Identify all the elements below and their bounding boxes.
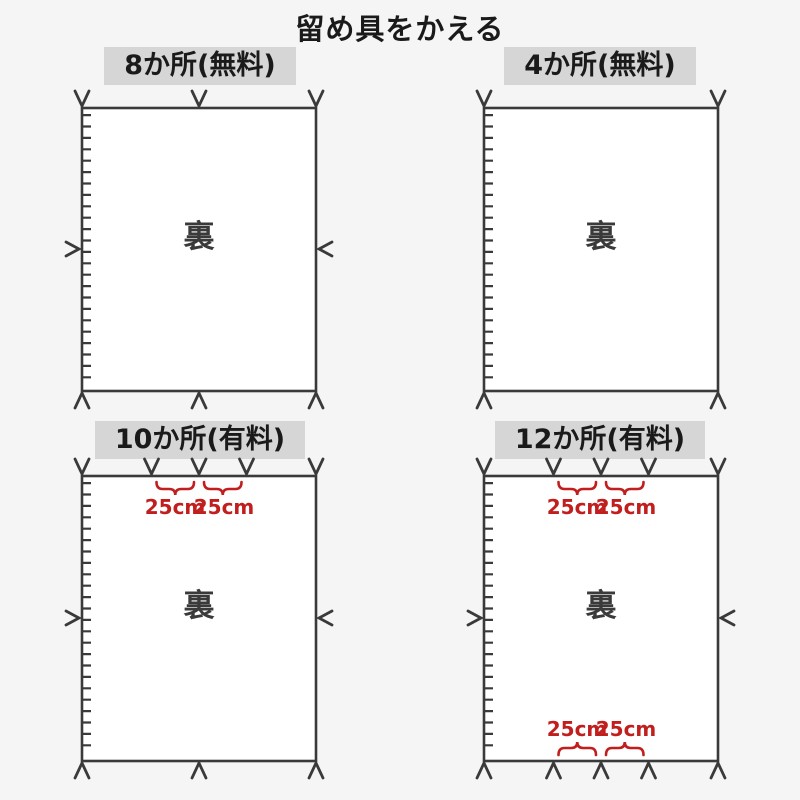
fastener-mark-icon — [309, 91, 323, 106]
fastener-mark-icon — [477, 393, 491, 408]
fastener-mark-icon — [240, 459, 254, 474]
fastener-mark-icon — [711, 91, 725, 106]
fastener-mark-icon — [594, 459, 608, 474]
fastener-mark-icon — [547, 459, 561, 474]
fastener-mark-icon — [468, 611, 481, 625]
fastener-mark-icon — [145, 459, 159, 474]
diagram-12-locations: 25cm 25cm 裏 25cm 25cm — [468, 459, 734, 778]
back-side-label: 裏 — [586, 588, 618, 624]
diagrams-canvas: 裏 裏 25cm 2 — [0, 0, 800, 800]
measure-label: 25cm — [596, 717, 657, 741]
diagram-8-locations: 裏 — [66, 91, 332, 408]
fastener-mark-icon — [547, 763, 561, 778]
fastener-mark-icon — [711, 459, 725, 474]
fastener-mark-icon — [594, 763, 608, 778]
fastener-mark-icon — [309, 763, 323, 778]
fastener-mark-icon — [75, 393, 89, 408]
fastener-mark-icon — [192, 91, 206, 106]
back-side-label: 裏 — [184, 588, 216, 624]
fastener-mark-icon — [642, 763, 656, 778]
fastener-mark-icon — [192, 393, 206, 408]
fastener-mark-icon — [319, 242, 332, 256]
fastener-mark-icon — [477, 763, 491, 778]
fastener-mark-icon — [477, 459, 491, 474]
fastener-mark-icon — [66, 242, 79, 256]
fastener-mark-icon — [192, 459, 206, 474]
diagram-4-locations: 裏 — [477, 91, 725, 408]
fastener-mark-icon — [66, 611, 79, 625]
fastener-mark-icon — [309, 393, 323, 408]
fastener-mark-icon — [319, 611, 332, 625]
fastener-mark-icon — [75, 91, 89, 106]
diagram-10-locations: 25cm 25cm 裏 — [66, 459, 332, 778]
fastener-mark-icon — [75, 459, 89, 474]
measure-label: 25cm — [596, 495, 657, 519]
back-side-label: 裏 — [184, 219, 216, 255]
fastener-mark-icon — [721, 611, 734, 625]
fastener-mark-icon — [711, 763, 725, 778]
fastener-mark-icon — [309, 459, 323, 474]
fastener-mark-icon — [192, 763, 206, 778]
fastener-options-diagram: 留め具をかえる 8か所(無料) 4か所(無料) 10か所(有料) 12か所(有料… — [0, 0, 800, 800]
fastener-mark-icon — [75, 763, 89, 778]
back-side-label: 裏 — [586, 219, 618, 255]
fastener-mark-icon — [477, 91, 491, 106]
fastener-mark-icon — [711, 393, 725, 408]
fastener-mark-icon — [642, 459, 656, 474]
measure-label: 25cm — [194, 495, 255, 519]
